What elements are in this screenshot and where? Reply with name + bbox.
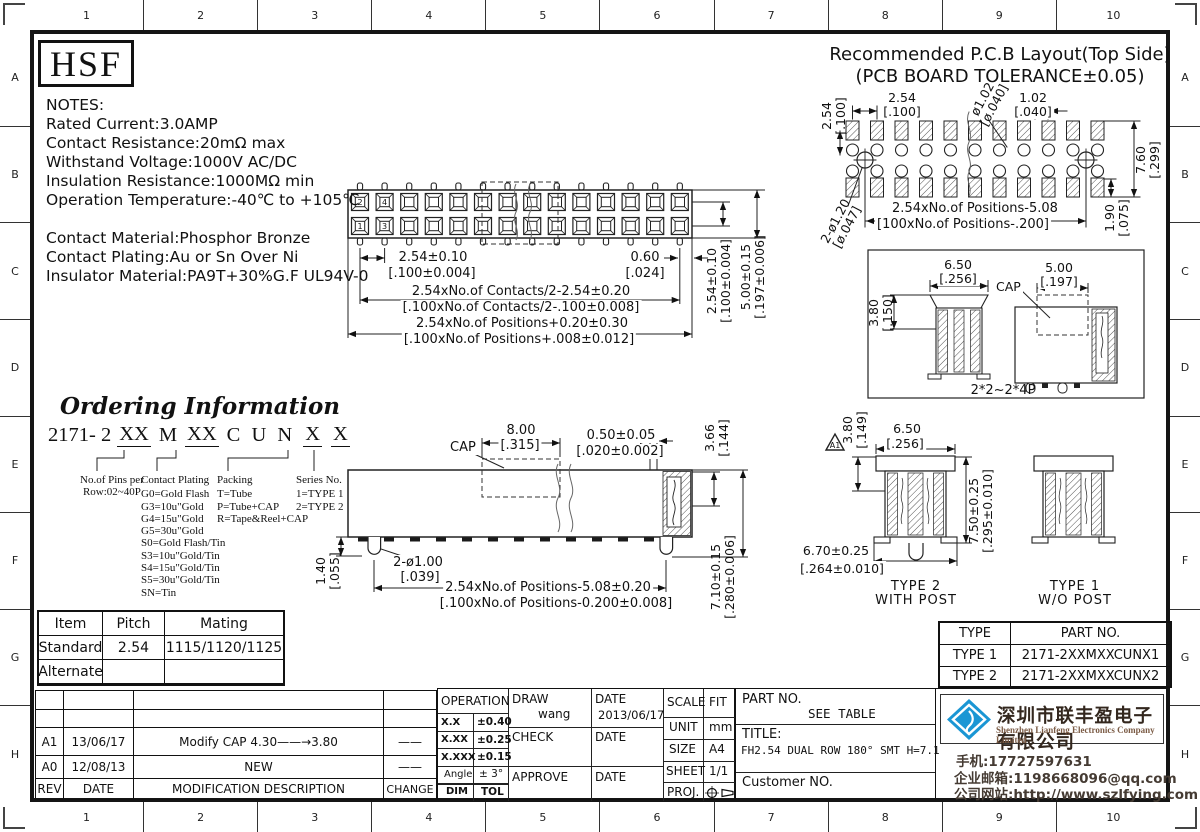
type-table-cell: TYPE 1 [940, 645, 1011, 667]
company-name-box: 深圳市联丰盈电子有限公司 Shenzhen Lianfeng Electroni… [940, 694, 1164, 744]
scale-label: SCALE [667, 695, 705, 709]
sb-range-label: 2*2~2*4P [971, 383, 1036, 398]
sb-cap-label: CAP [994, 279, 1023, 294]
dim-sv-cap-in: [.315] [498, 438, 541, 453]
dim-tv-positions: 2.54xNo.of Positions+0.20±0.30 [414, 316, 630, 331]
rev-date: 12/08/13 [64, 755, 134, 778]
dim-pcb-offset: 1.90[.075] [1103, 199, 1131, 237]
note-line: Contact Resistance:20mΩ max [46, 134, 369, 153]
type-table: TYPE PART NO. TYPE 1 2171-2XXMXXCUNX1 TY… [938, 621, 1172, 688]
dim-ty-feet: 6.70±0.25 [801, 543, 871, 558]
dim-tv-positions-in: [.100xNo.of Positions+.008±0.012] [402, 332, 636, 347]
rev-header: REV [36, 778, 64, 799]
dim-pcb-positions-in: [100xNo.of Positions-.200] [875, 217, 1051, 232]
tol-val: TOL [481, 786, 504, 798]
dim-sb-height: 3.80[.150] [867, 294, 895, 332]
proj-label: PROJ. [667, 785, 699, 799]
title-label: TITLE: [742, 727, 782, 742]
approve-date-label: DATE [595, 770, 626, 784]
mating-cell: 1115/1120/1125 [165, 636, 283, 660]
type1-label: TYPE 1 [1050, 579, 1100, 594]
part-no-label: PART NO. [742, 692, 802, 707]
dim-tv-contacts-in: [.100xNo.of Contacts/2-.100±0.008] [401, 300, 642, 315]
note-line: Operation Temperature:-40℃ to +105℃ [46, 191, 369, 210]
approve-label: APPROVE [512, 770, 568, 784]
dim-sv-post: 2-ø1.00 [391, 555, 445, 570]
legend-packing: Packing T=TubeP=Tube+CAPR=Tape&Reel+CAP [217, 474, 308, 525]
code-cun: C U N [227, 424, 296, 447]
projection-symbol-icon [705, 786, 735, 800]
scale-value: FIT [709, 695, 727, 709]
sv-cap-label: CAP [448, 440, 478, 455]
note-line [46, 210, 369, 229]
unit-value: mm [709, 720, 732, 734]
mating-cell: Standard [39, 636, 103, 660]
draw-date: 2013/06/17 [598, 708, 664, 722]
size-value: A4 [709, 742, 725, 756]
rev-header: DATE [64, 778, 134, 799]
pin-number: 3 [382, 222, 387, 231]
dim-sv-height: 7.10±0.15[.280±0.006] [709, 535, 737, 619]
drawn-by: wang [538, 707, 570, 721]
mating-table: Item Pitch Mating Standard 2.54 1115/112… [37, 610, 285, 686]
code-pins: XX [117, 423, 151, 447]
pcb-title: Recommended P.C.B Layout(Top Side) [829, 44, 1170, 65]
tol-key: X.XXX [441, 752, 476, 763]
type-table-header: TYPE [940, 623, 1011, 645]
company-website: 公司网站:http://www.szlfying.com [954, 783, 1198, 803]
dim-tv-end-in: [.024] [623, 266, 666, 281]
dim-pcb-positions: 2.54xNo.of Positions-5.08 [890, 201, 1060, 216]
dim-ty-feet-in: [.264±0.010] [798, 561, 886, 576]
title-block: OPERATION X.X ±0.40 X.XX ±0.25 X.XXX ±0.… [437, 688, 735, 800]
type-table-cell: 2171-2XXMXXCUNX2 [1011, 667, 1170, 687]
dim-tv-pitch-in: [.100±0.004] [386, 266, 477, 281]
company-name-en: Shenzhen Lianfeng Electronics Company Li… [996, 725, 1163, 745]
mating-cell [103, 660, 165, 684]
customer-no-label: Customer NO. [742, 775, 833, 790]
dim-pcb-pitch-in: [.100] [881, 104, 923, 119]
note-line: Insulation Resistance:1000MΩ min [46, 172, 369, 191]
sheet-value: 1/1 [709, 764, 728, 778]
tol-key: X.X [441, 717, 460, 728]
dim-ty-height: 7.50±0.25[.295±0.010] [967, 469, 995, 553]
mating-header: Pitch [103, 612, 165, 636]
dim-tv-pitch: 2.54±0.10 [397, 250, 470, 265]
check-date-label: DATE [595, 730, 626, 744]
tol-key: Angle [444, 769, 472, 780]
type1-sublabel: W/O POST [1038, 593, 1112, 608]
company-block: 深圳市联丰盈电子有限公司 Shenzhen Lianfeng Electroni… [935, 688, 1168, 800]
drawing-sheet: 1 2 3 4 5 6 7 8 9 10 1 2 3 4 5 6 7 8 9 1… [0, 0, 1200, 832]
tol-val: ±0.25 [477, 734, 512, 746]
dim-pcb-pitch: 2.54 [886, 90, 918, 105]
dim-tv-row: 2.54±0.10[.100±0.004] [705, 239, 733, 323]
note-line: Contact Plating:Au or Sn Over Ni [46, 248, 369, 267]
unit-label: UNIT [669, 720, 698, 734]
tol-key: DIM [446, 786, 468, 797]
dim-ty-cap: 3.80[.149] [841, 411, 869, 449]
dim-sb-width: 6.50 [942, 257, 974, 272]
revision-table: A1 13/06/17 Modify CAP 4.30——→3.80 —— A0… [35, 690, 437, 800]
rev-id: A0 [36, 755, 64, 778]
revision-flag-label: A1 [830, 441, 841, 450]
code-plating: XX [185, 423, 219, 447]
ordering-code: 2171- 2 XX M XX C U N X X [48, 423, 350, 447]
tol-key: X.XX [441, 734, 468, 745]
dim-sb-cap: 5.00 [1043, 260, 1075, 275]
part-no-value: SEE TABLE [808, 706, 876, 721]
note-line: Contact Material:Phosphor Bronze [46, 229, 369, 248]
mating-header: Mating [165, 612, 283, 636]
note-line: Insulator Material:PA9T+30%G.F UL94V-0 [46, 267, 369, 286]
dim-sv-positions-in: [.100xNo.of Positions-0.200±0.008] [438, 596, 674, 611]
rev-header: CHANGE [384, 778, 436, 799]
type2-sublabel: WITH POST [875, 593, 957, 608]
dim-pcb-half: 1.02 [1017, 90, 1049, 105]
company-logo-icon [946, 698, 992, 741]
pin-number: 4 [382, 198, 387, 207]
legend-plating: Contact Plating G0=Gold FlashG3=10u"Gold… [141, 474, 225, 599]
code-packing: X [303, 423, 322, 447]
mating-cell: 2.54 [103, 636, 165, 660]
rev-desc: NEW [134, 755, 384, 778]
draw-label: DRAW [512, 692, 549, 706]
code-series: X [331, 423, 350, 447]
rev-change: —— [384, 727, 436, 755]
note-line: Withstand Voltage:1000V AC/DC [46, 153, 369, 172]
dim-pcb-half-in: [.040] [1012, 104, 1054, 119]
hsf-logo-text: HSF [50, 43, 122, 85]
title-value: FH2.54 DUAL ROW 180° SMT H=7.1 [741, 744, 940, 757]
rev-header: MODIFICATION DESCRIPTION [134, 778, 384, 799]
tol-val: ± 3° [479, 768, 503, 780]
part-block: PART NO. SEE TABLE TITLE: FH2.54 DUAL RO… [735, 688, 935, 800]
ordering-title: Ordering Information [60, 393, 340, 420]
section-view-box [868, 250, 1144, 398]
rev-id: A1 [36, 727, 64, 755]
dim-pcb-span: 7.60[.299] [1134, 141, 1162, 179]
rev-desc: Modify CAP 4.30——→3.80 [134, 727, 384, 755]
dim-sb-width-in: [.256] [937, 271, 979, 286]
type-table-cell: 2171-2XXMXXCUNX1 [1011, 645, 1170, 667]
dim-sv-positions: 2.54xNo.of Positions-5.08±0.20 [443, 580, 653, 595]
code-m: M [159, 424, 177, 447]
dim-tv-body: 5.00±0.15[.197±0.006] [739, 235, 767, 319]
dim-sv-pad-in: [.020±0.002] [574, 444, 665, 459]
dim-sv-contact-h: 3.66[.144] [703, 419, 731, 457]
tol-val: ±0.15 [477, 751, 512, 763]
dim-sv-cap: 8.00 [505, 423, 538, 438]
operation-label: OPERATION [441, 694, 510, 708]
mating-cell: Alternate [39, 660, 103, 684]
hsf-logo: HSF [38, 40, 134, 87]
mating-cell [165, 660, 283, 684]
size-label: SIZE [669, 742, 696, 756]
dim-ty-width-in: [.256] [884, 436, 926, 451]
code-prefix: 2171- 2 [48, 424, 111, 447]
notes: NOTES: Rated Current:3.0AMP Contact Resi… [46, 96, 369, 286]
dim-sv-post-h: 1.40[.055] [314, 552, 342, 590]
dim-tv-contacts: 2.54xNo.of Contacts/2-2.54±0.20 [410, 284, 632, 299]
type-table-header: PART NO. [1011, 623, 1170, 645]
rev-change: —— [384, 755, 436, 778]
date-label: DATE [595, 692, 626, 706]
note-line: NOTES: [46, 96, 369, 115]
dim-sv-post-in: [.039] [398, 570, 441, 585]
rev-date: 13/06/17 [64, 727, 134, 755]
dim-sv-pad: 0.50±0.05 [585, 428, 658, 443]
legend-series: Series No. 1=TYPE 12=TYPE 2 [296, 474, 343, 513]
dim-tv-end: 0.60 [629, 250, 662, 265]
legend-pins: No.of Pins perRow:02~40P [80, 474, 144, 499]
dim-pcb-row-pitch: 2.54[.100] [820, 97, 848, 135]
dim-ty-width: 6.50 [891, 421, 923, 436]
type-table-cell: TYPE 2 [940, 667, 1011, 687]
check-label: CHECK [512, 730, 553, 744]
sheet-label: SHEET [666, 764, 705, 778]
ordering-leaders [97, 450, 314, 471]
dim-sb-cap-in: [.197] [1038, 274, 1080, 289]
mating-header: Item [39, 612, 103, 636]
tol-val: ±0.40 [477, 716, 512, 728]
note-line: Rated Current:3.0AMP [46, 115, 369, 134]
type2-label: TYPE 2 [891, 579, 941, 594]
